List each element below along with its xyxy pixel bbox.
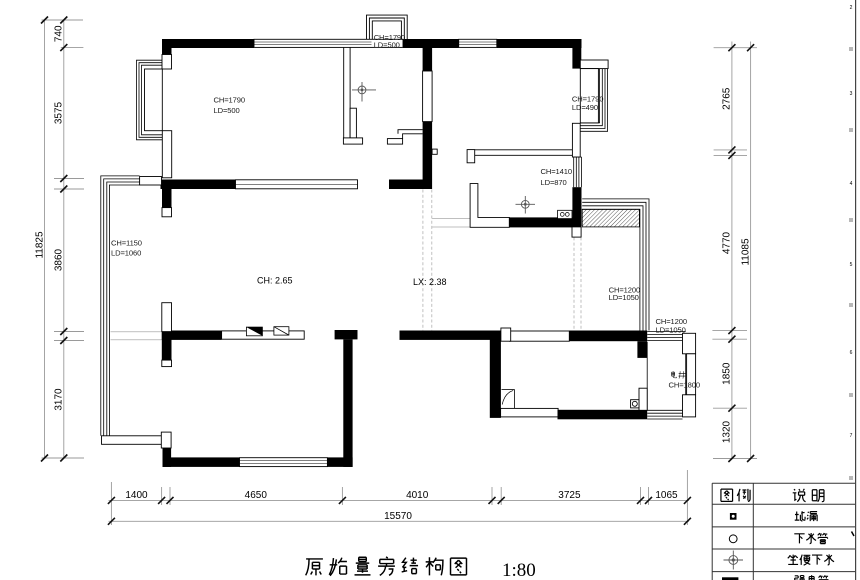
svg-text:3575: 3575 [54, 101, 65, 124]
svg-text:CH=1800: CH=1800 [669, 380, 700, 389]
svg-text:3: 3 [850, 91, 853, 97]
svg-text:LD=1060: LD=1060 [111, 248, 141, 257]
svg-text:CH=1790: CH=1790 [572, 95, 603, 104]
svg-text:15570: 15570 [384, 511, 412, 522]
svg-text:2765: 2765 [722, 87, 733, 110]
svg-text:3725: 3725 [558, 490, 581, 501]
svg-text:6: 6 [850, 350, 853, 356]
svg-text:740: 740 [54, 25, 65, 42]
svg-text:CH=1410: CH=1410 [541, 167, 572, 176]
svg-text:4770: 4770 [722, 231, 733, 254]
svg-text:LD=1050: LD=1050 [656, 325, 686, 334]
svg-text:3170: 3170 [54, 388, 65, 411]
svg-text:11825: 11825 [35, 231, 46, 259]
svg-text:1400: 1400 [125, 490, 148, 501]
svg-text:LD=500: LD=500 [374, 41, 400, 50]
svg-text:1:80: 1:80 [502, 560, 536, 580]
svg-text:CH=1790: CH=1790 [214, 96, 245, 105]
svg-text:11085: 11085 [740, 238, 751, 266]
svg-text:LD=1050: LD=1050 [609, 293, 639, 302]
svg-text:4: 4 [850, 181, 853, 187]
svg-text:1320: 1320 [722, 420, 733, 443]
svg-text:LX: 2.38: LX: 2.38 [413, 277, 447, 287]
svg-text:3860: 3860 [54, 248, 65, 271]
svg-text:2: 2 [850, 5, 853, 11]
svg-text:LD=490: LD=490 [572, 103, 598, 112]
svg-text:4650: 4650 [245, 490, 268, 501]
svg-text:4010: 4010 [406, 490, 429, 501]
svg-text:CH: 2.65: CH: 2.65 [257, 276, 293, 286]
svg-text:1065: 1065 [655, 490, 678, 501]
svg-text:5: 5 [850, 262, 853, 268]
svg-text:1850: 1850 [722, 362, 733, 385]
svg-text:7: 7 [850, 433, 853, 439]
svg-text:CH=1150: CH=1150 [111, 239, 142, 248]
svg-text:LD=500: LD=500 [214, 106, 240, 115]
svg-text:LD=870: LD=870 [541, 178, 567, 187]
